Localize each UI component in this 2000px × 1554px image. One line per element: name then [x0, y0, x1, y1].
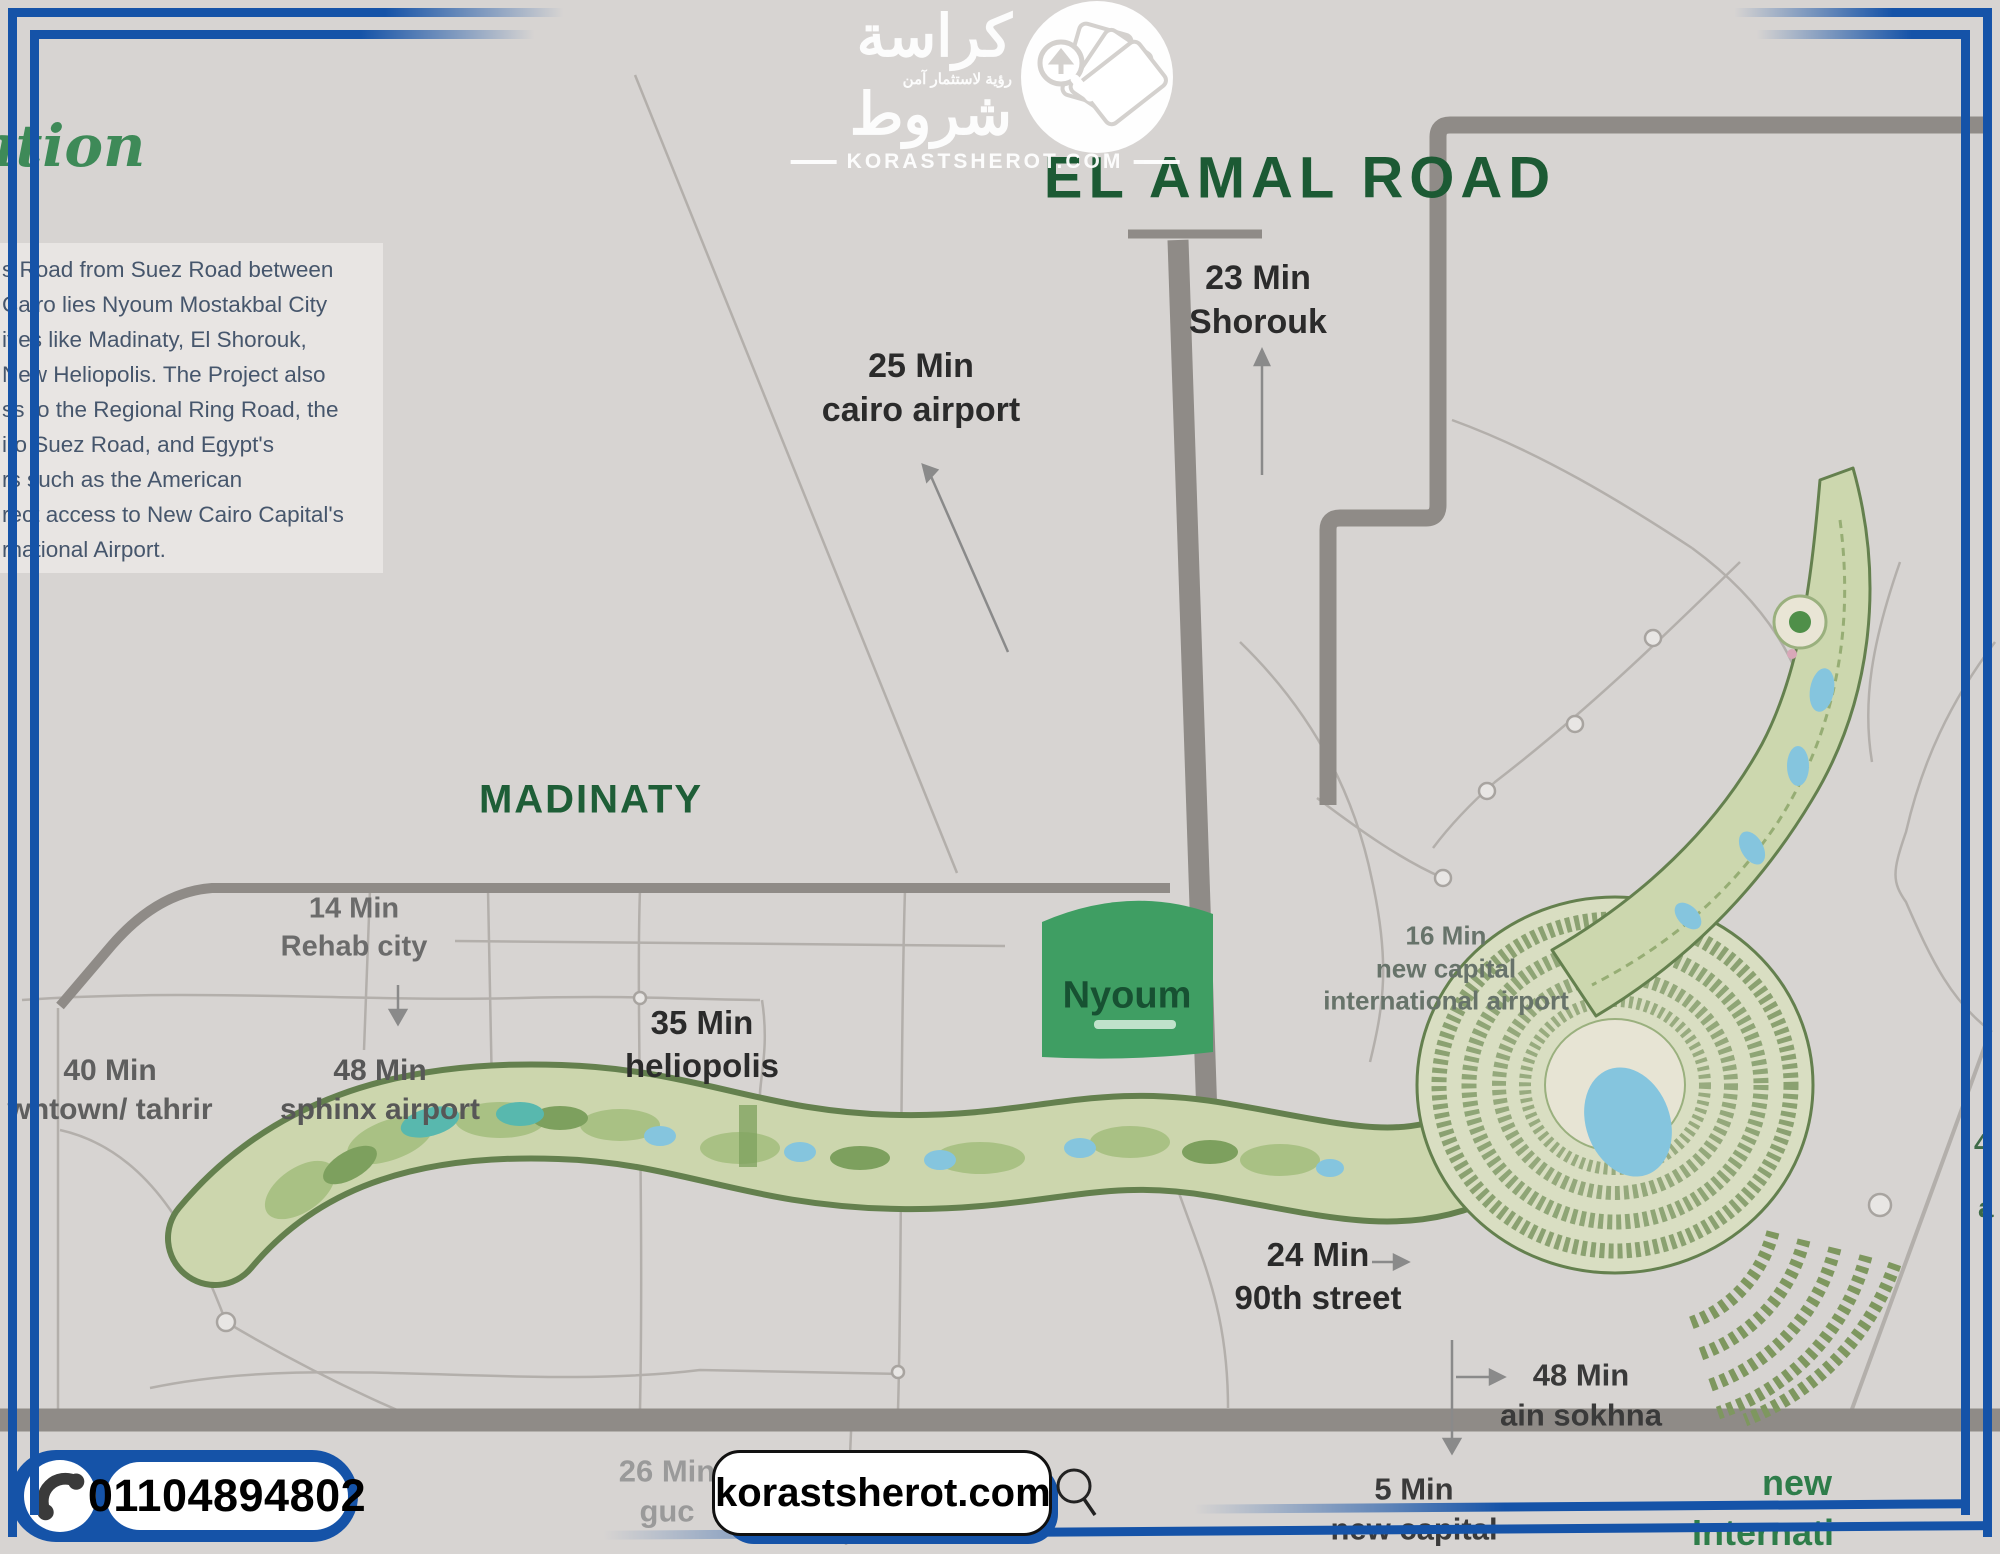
location-script-fragment: ation	[0, 112, 145, 180]
magnifier-icon	[1051, 1465, 1103, 1521]
paragraph-line: ities like Madinaty, El Shorouk,	[2, 322, 402, 357]
madinaty-label: MADINATY	[479, 778, 703, 823]
fan-sector-development	[1688, 1232, 1895, 1420]
frame-inner-left	[30, 30, 39, 1515]
time-value: 24 Min	[1235, 1234, 1402, 1277]
place-name: sphinx airport	[280, 1090, 480, 1129]
place-name: new capital international airport	[1310, 952, 1582, 1017]
cairo-airport-arrow	[923, 465, 1008, 652]
frame-inner-right	[1961, 30, 1970, 1515]
time-value: 35 Min	[625, 1002, 779, 1045]
frame-outer-top	[8, 8, 1992, 17]
dash-decoration	[791, 160, 837, 164]
frame-outer-left	[8, 8, 17, 1537]
place-name: Rehab city	[281, 928, 428, 966]
search-icon-cell[interactable]	[1051, 1453, 1103, 1533]
dash-decoration	[1133, 160, 1179, 164]
paragraph-line: Cairo lies Nyoum Mostakbal City	[2, 287, 402, 322]
annotation-new-capital-airport: 16 Min new capital international airport	[1310, 919, 1582, 1017]
paragraph-line: rnational Airport.	[2, 532, 402, 567]
regional-ring-road	[1328, 125, 1992, 805]
time-value: 16 Min	[1310, 919, 1582, 952]
annotation-90th-street: 24 Min 90th street	[1235, 1234, 1402, 1320]
frame-inner-top	[30, 30, 1970, 39]
place-name: cairo airport	[822, 388, 1020, 432]
place-name: 90th street	[1235, 1277, 1402, 1320]
place-name: Shorouk	[1189, 300, 1327, 344]
paragraph-line: rect access to New Cairo Capital's	[2, 497, 402, 532]
logo-site-text: KORASTSHEROT.COM	[847, 150, 1124, 174]
annotation-cairo-airport: 25 Min cairo airport	[822, 344, 1020, 432]
site-url-text: korastsherot.com	[715, 1453, 1051, 1533]
edge-label-international: Internati	[1692, 1512, 1834, 1554]
masterplan-map	[0, 0, 2000, 1545]
paragraph-line: iro Suez Road, and Egypt's	[2, 427, 402, 462]
paragraph-line: New Heliopolis. The Project also	[2, 357, 402, 392]
time-value: 25 Min	[822, 344, 1020, 388]
place-name: guc	[619, 1492, 715, 1532]
annotation-ain-sokhna: 48 Min ain sokhna	[1500, 1356, 1662, 1437]
edge-label-new: new	[1762, 1462, 1832, 1504]
logo-arabic-word: شروط	[850, 86, 1012, 144]
annotation-guc: 26 Min guc	[619, 1452, 715, 1533]
frame-outer-right	[1983, 8, 1992, 1537]
nyoum-label: Nyoum	[1063, 975, 1192, 1018]
location-paragraph: s Road from Suez Road between Cairo lies…	[2, 252, 402, 567]
place-name: ain sokhna	[1500, 1396, 1662, 1436]
annotation-heliopolis: 35 Min heliopolis	[625, 1002, 779, 1088]
annotation-rehab-city: 14 Min Rehab city	[281, 890, 428, 965]
paragraph-line: rs such as the American	[2, 462, 402, 497]
time-value: 14 Min	[281, 890, 428, 928]
nyoum-subtitle-bar	[1094, 1020, 1176, 1029]
ain-sokhna-arrow	[1444, 1340, 1504, 1453]
annotation-sphinx-airport: 48 Min sphinx airport	[280, 1051, 480, 1129]
logo-badge	[1018, 0, 1188, 165]
paragraph-line: s Road from Suez Road between	[2, 252, 402, 287]
shorouk-arrow	[1255, 350, 1269, 475]
time-value: 48 Min	[1500, 1356, 1662, 1396]
paragraph-line: ss to the Regional Ring Road, the	[2, 392, 402, 427]
annotation-shorouk: 23 Min Shorouk	[1189, 256, 1327, 344]
time-value: 48 Min	[280, 1051, 480, 1090]
rehab-city-arrow	[390, 985, 406, 1024]
logo-site-line: KORASTSHEROT.COM	[791, 150, 1180, 174]
place-name: heliopolis	[625, 1045, 779, 1088]
time-value: 26 Min	[619, 1452, 715, 1492]
site-search-bar[interactable]: korastsherot.com	[712, 1450, 1052, 1536]
time-value: 23 Min	[1189, 256, 1327, 300]
